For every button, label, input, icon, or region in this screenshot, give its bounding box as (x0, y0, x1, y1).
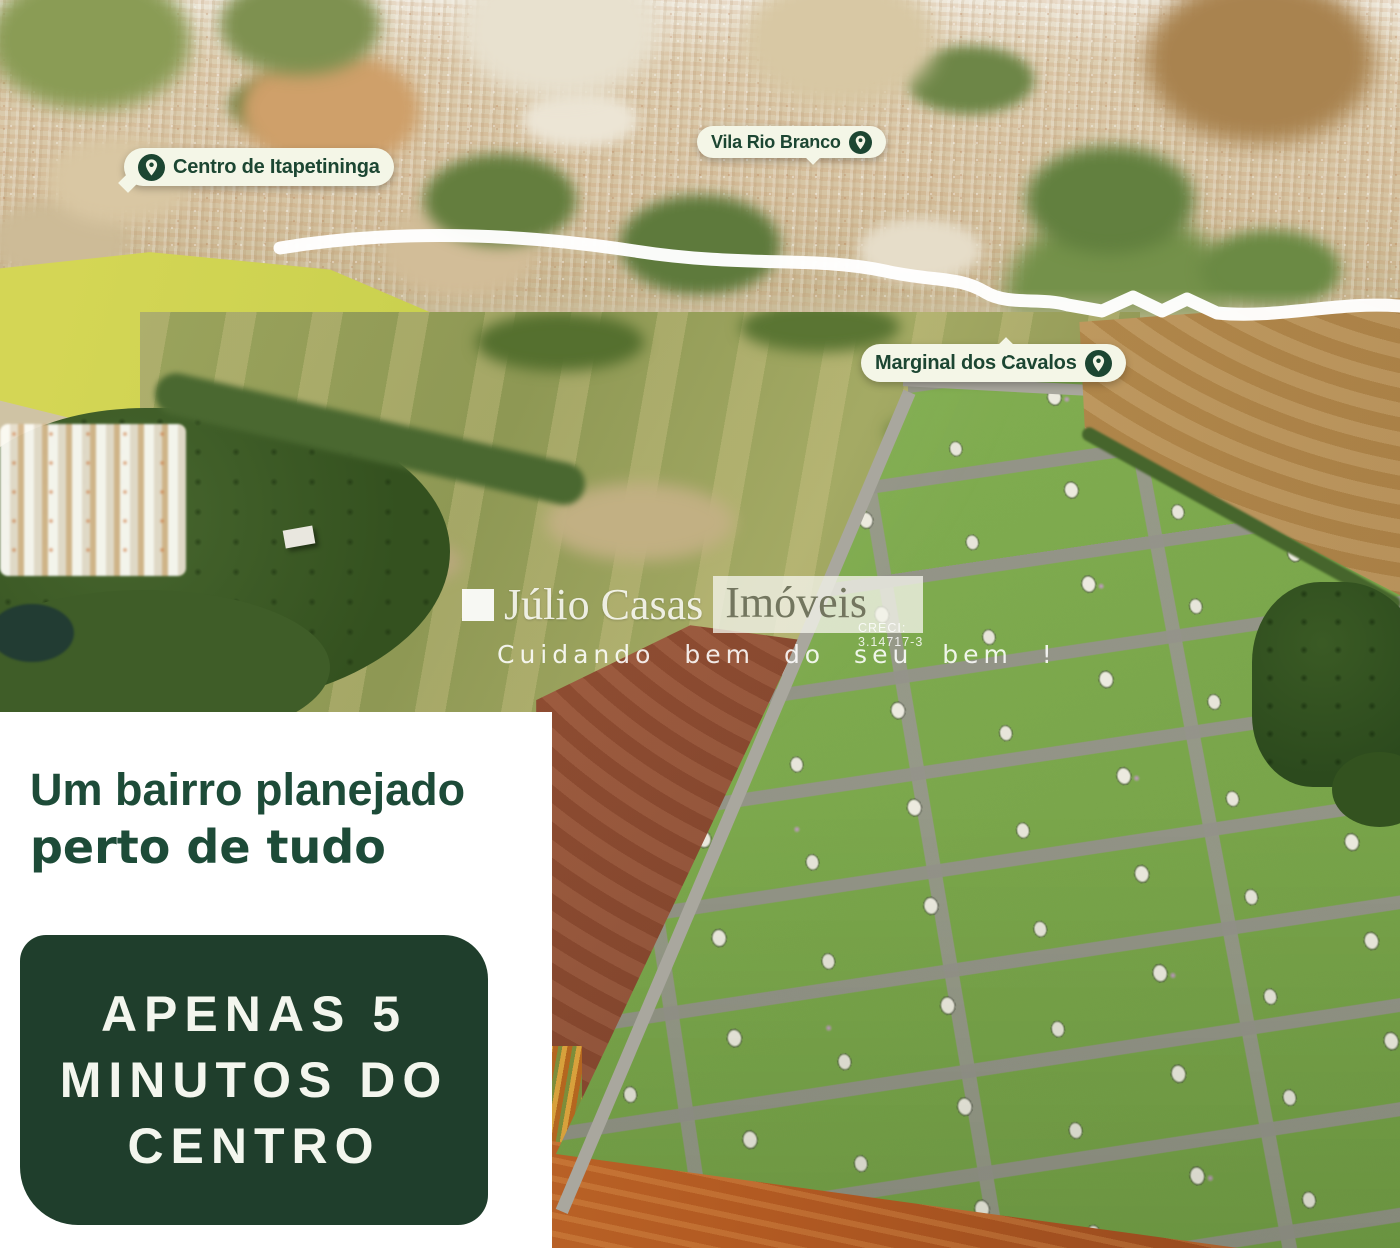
badge-line2: MINUTOS DO (60, 1047, 449, 1113)
promo-panel: Um bairro planejado perto de tudo APENAS… (0, 712, 552, 1248)
location-pin-icon (1085, 350, 1112, 377)
map-label-text: Marginal dos Cavalos (875, 352, 1077, 375)
promo-image: Centro de Itapetininga Vila Rio Branco M… (0, 0, 1400, 1248)
distance-badge: APENAS 5 MINUTOS DO CENTRO (20, 935, 488, 1225)
headline: Um bairro planejado perto de tudo (30, 762, 465, 877)
brand-lockup: Júlio Casas Imóveis (462, 576, 923, 633)
brand-logo-square (462, 589, 494, 621)
map-label-text: Centro de Itapetininga (173, 156, 380, 179)
badge-line1: APENAS 5 (101, 981, 407, 1047)
village-buildings (0, 424, 186, 576)
location-pin-icon (849, 131, 872, 154)
headline-line1: Um bairro planejado (30, 762, 465, 819)
map-label-marginal-dos-cavalos: Marginal dos Cavalos (861, 344, 1126, 382)
map-label-text: Vila Rio Branco (711, 132, 841, 153)
brand-tagline: Cuidando bem do seu bem ! (497, 640, 1057, 669)
map-label-vila-rio-branco: Vila Rio Branco (697, 126, 886, 158)
location-pin-icon (138, 154, 165, 181)
headline-line2: perto de tudo (30, 819, 465, 877)
brand-watermark: Júlio Casas Imóveis CRECI: 3.14717-3 Cui… (462, 576, 962, 686)
brand-name: Júlio Casas (504, 579, 703, 630)
map-label-centro: Centro de Itapetininga (124, 148, 394, 186)
badge-line3: CENTRO (127, 1113, 380, 1179)
